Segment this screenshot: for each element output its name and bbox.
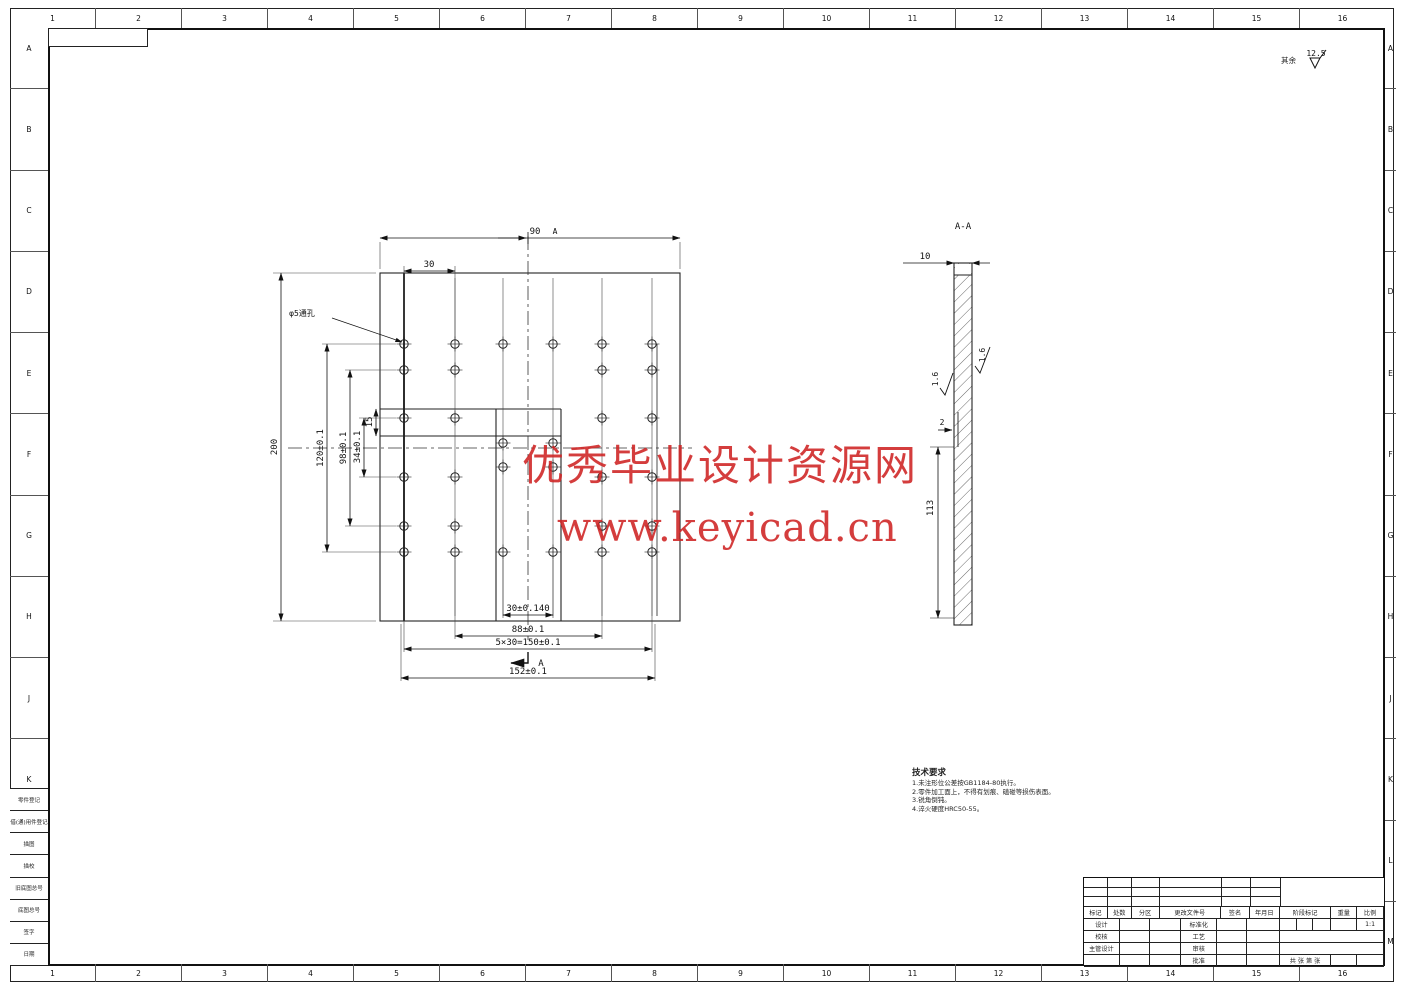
section-title: A-A [955,222,972,232]
rev-col-mark: 标记 [1084,907,1108,919]
surface-note-prefix: 其余 [1281,55,1296,66]
tech-req-line: 1.未注形位公差按GB1184-80执行。 [912,779,1102,788]
sign-design: 设计 [1084,919,1120,931]
sign-audit: 审核 [1181,943,1217,955]
tech-req-line: 2.零件加工面上，不得有划痕、磕碰等损伤表面。 [912,788,1102,797]
rev-col-docno: 更改文件号 [1160,907,1222,919]
datum-label: A [553,227,558,236]
stage-label: 阶段标记 [1280,907,1332,919]
sign-standard: 标准化 [1181,919,1217,931]
technical-requirements: 技术要求 1.未注形位公差按GB1184-80执行。2.零件加工面上，不得有划痕… [912,766,1102,813]
dim-88: 88±0.1 [512,625,545,635]
dim-34: 34±0.1 [353,431,363,464]
dim-step-2: 2 [940,418,945,427]
sign-approve: 批准 [1181,955,1217,967]
roughness-right: 1.6 [978,348,987,363]
sign-check: 校核 [1084,931,1120,943]
tech-req-title: 技术要求 [912,766,1102,778]
tech-req-lines: 1.未注形位公差按GB1184-80执行。2.零件加工面上，不得有划痕、磕碰等损… [912,779,1102,813]
watermark-line1: 优秀毕业设计资源网 [522,432,918,493]
roughness-symbol-icon: 12.5 [1304,48,1334,72]
rev-col-count: 处数 [1108,907,1132,919]
margin-table-row: 日期 [10,944,48,966]
margin-table-row: 零件登记 [10,789,48,811]
margin-table-row: 借(通)用件登记 [10,811,48,833]
tech-req-line: 4.淬火硬度HRC50-55。 [912,805,1102,814]
dim-98: 98±0.1 [339,432,349,465]
dim-thickness-10: 10 [920,252,931,262]
revision-grid [1084,878,1281,907]
margin-table-row: 描图 [10,833,48,855]
drawing-sheet: 12345678910111213141516 1234567891011121… [0,0,1403,992]
drawing-number-box [1281,878,1384,907]
dim-150: 5×30=150±0.1 [495,638,560,648]
section-arrow-label: A [538,659,544,669]
sign-chief: 主管设计 [1084,943,1120,955]
dim-depth-113: 113 [926,500,936,516]
scale-label: 比例 [1357,907,1384,919]
dim-30-40: 30±0.140 [506,604,549,614]
margin-table-row: 签字 [10,922,48,944]
roughness-left: 1.6 [931,372,940,387]
surface-roughness-note: 其余 12.5 [1281,48,1334,72]
section-view: A-A 10 2 113 1.6 1.6 [903,222,990,625]
dim-half-width: 90 [530,227,541,237]
dimension-texts: 90 A 30 200 120±0.1 98±0.1 34±0.1 15 30±… [270,227,561,677]
dim-height-200: 200 [270,439,280,455]
dim-15: 15 [365,417,375,428]
sheets-label: 共 张 第 张 [1280,955,1332,967]
dim-pitch-30: 30 [424,260,435,270]
dim-120: 120±0.1 [316,429,326,467]
watermark-line2: www.keyicad.cn [557,505,898,551]
margin-table: 零件登记借(通)用件登记描图描校旧底图总号底图总号签字日期 [10,788,48,966]
margin-table-row: 描校 [10,855,48,877]
rev-col-sign: 签名 [1221,907,1250,919]
margin-table-row: 旧底图总号 [10,878,48,900]
tech-req-line: 3.锐角倒钝。 [912,796,1102,805]
hole-note: φ5通孔 [289,308,315,318]
sign-blank [1084,955,1120,967]
rev-col-date: 年月日 [1250,907,1280,919]
cad-drawing: 90 A 30 200 120±0.1 98±0.1 34±0.1 15 30±… [0,0,1403,992]
margin-table-row: 底图总号 [10,900,48,922]
scale-value: 1:1 [1357,919,1384,931]
rev-col-zone: 分区 [1132,907,1160,919]
title-block: 标记 处数 分区 更改文件号 签名 年月日 阶段标记 重量 比例 设计 标准化 … [1083,877,1385,966]
weight-label: 重量 [1331,907,1357,919]
sign-process: 工艺 [1181,931,1217,943]
